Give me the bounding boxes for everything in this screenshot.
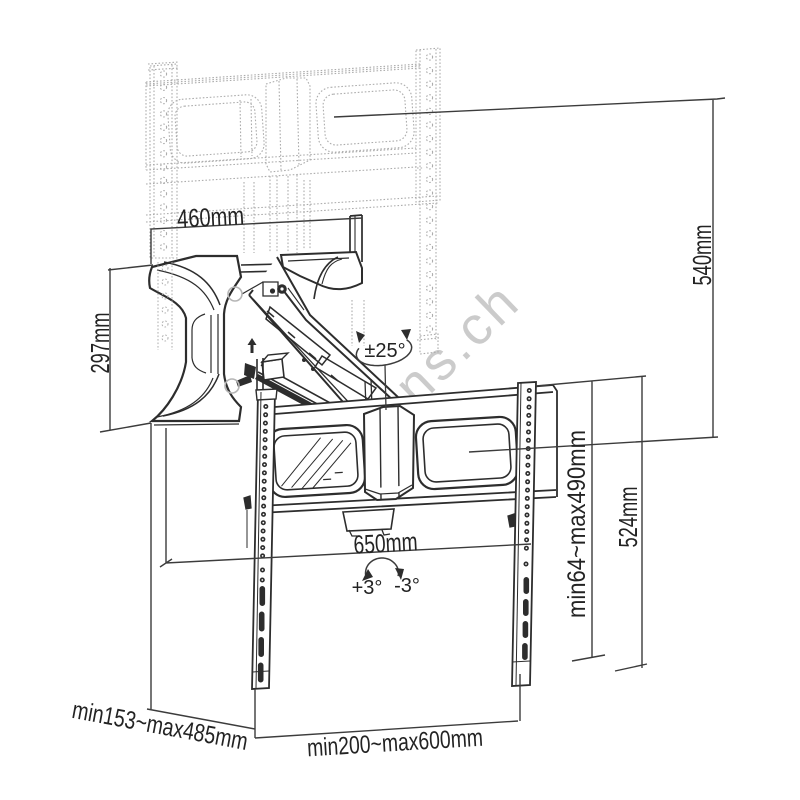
svg-text:524mm: 524mm — [613, 487, 643, 548]
svg-text:-3°: -3° — [394, 575, 420, 597]
svg-text:540mm: 540mm — [687, 225, 717, 286]
svg-text:+3°: +3° — [352, 577, 383, 599]
svg-text:460mm: 460mm — [176, 200, 244, 233]
svg-text:±25°: ±25° — [364, 340, 405, 362]
svg-text:min64~max490mm: min64~max490mm — [563, 430, 591, 618]
svg-text:650mm: 650mm — [353, 526, 418, 559]
svg-text:297mm: 297mm — [85, 313, 115, 374]
